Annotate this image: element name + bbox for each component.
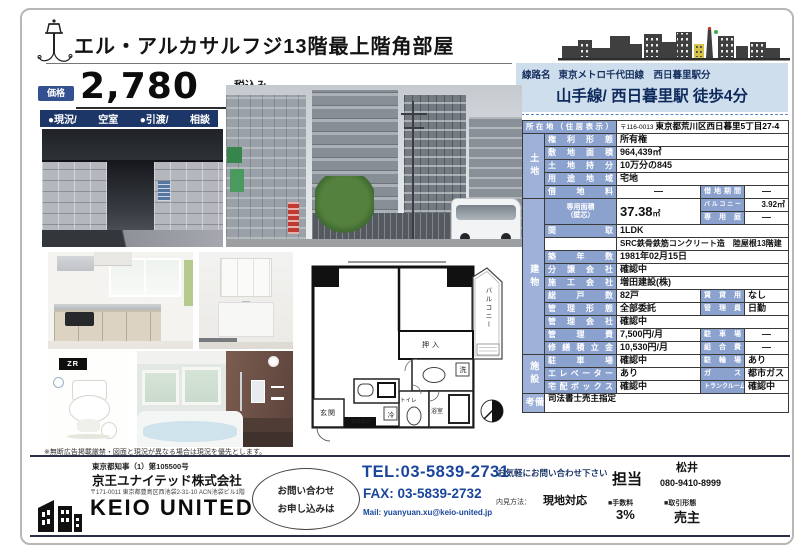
row-value: 1981年02月15日 [617, 251, 789, 264]
label-entrance: 玄関 [320, 408, 336, 418]
photo-entrance [42, 129, 223, 247]
area-label-sub: （壁芯） [548, 212, 613, 219]
floor-shadow [67, 434, 109, 440]
row-label: 管理費 [545, 329, 617, 342]
tree [315, 176, 374, 236]
range-hood [57, 256, 95, 272]
bath-window [182, 367, 221, 404]
price-underline [76, 107, 228, 109]
row-label: 土地持分 [545, 160, 617, 173]
row-label: 総戸数 [545, 290, 617, 303]
contact-person-phone: 080-9410-8999 [660, 478, 721, 488]
deal-type-value: 売主 [674, 507, 700, 526]
table-row: 築年数1981年02月15日 [523, 251, 789, 264]
row-value: 確認中 [617, 381, 701, 394]
row-label: 宅配ボックス [545, 381, 617, 394]
contact-person-label: 担当 [612, 468, 642, 489]
contact-notice: お気軽にお問い合わせ下さい [497, 467, 608, 479]
row-value2: あり [745, 355, 789, 368]
balcony-label: バルコニー [701, 199, 745, 212]
table-row: エレベーター あり ガス 都市ガス [523, 368, 789, 381]
entrance-opening [107, 160, 154, 231]
row-value: 10万分の845 [617, 160, 789, 173]
title-underline [46, 63, 512, 64]
row-value: SRC鉄骨鉄筋コンクリート造 陸屋根13階建 [617, 238, 789, 251]
row-label2: ガス [701, 368, 745, 381]
dashed-divider [516, 114, 788, 115]
bathtub [137, 411, 243, 447]
group-facility: 施設 [523, 355, 545, 394]
floor-plan-drawing [296, 251, 513, 450]
entrance-floor [42, 230, 223, 247]
photo-kitchen [48, 252, 193, 349]
row-label: 用途地域 [545, 173, 617, 186]
table-row: 間取1LDK [523, 225, 789, 238]
group-land: 土地 [523, 134, 545, 199]
upper-cabinet [94, 252, 132, 266]
bath-water [143, 421, 236, 441]
access-walk: 山手線/ 西日暮里駅 徒歩4分 [522, 84, 782, 106]
label-closet: 押入 [422, 340, 442, 350]
photo-building-exterior [226, 85, 522, 247]
photo-washbasin [199, 252, 293, 349]
address-value: 〒116-0013東京都荒川区西日暮里5丁目27-4 [617, 121, 789, 134]
row-value: 10,530円/月 [617, 342, 701, 355]
row-label: 敷地面積 [545, 147, 617, 160]
zip-code: 〒116-0013 [620, 124, 654, 131]
row-value: 964,439㎡ [617, 147, 789, 160]
row-label: 間取 [545, 225, 617, 238]
row-label: 分譲会社 [545, 264, 617, 277]
row-value: 増田建設(株) [617, 277, 789, 290]
access-line: 線路名東京メトロ千代田線 西日暮里駅分 [522, 67, 782, 81]
property-spec-table: 所在地（住居表示） 〒116-0013東京都荒川区西日暮里5丁目27-4 土地 … [522, 120, 789, 413]
toilet-base [77, 419, 100, 432]
row-label: エレベーター [545, 368, 617, 381]
label-fridge: 冷 [385, 409, 397, 419]
row-value2: なし [745, 290, 789, 303]
row-label: 施工会社 [545, 277, 617, 290]
green-sign [227, 147, 242, 163]
group-building: 建物 [523, 199, 545, 355]
vanity-unit [218, 302, 274, 337]
area-number: 37.38 [620, 204, 653, 219]
viewing-method-value: 現地対応 [543, 492, 587, 508]
row-value: 確認中 [617, 316, 789, 329]
company-logo-text: KEIO UNITED [90, 495, 254, 521]
row-value: 確認中 [617, 264, 789, 277]
entrance-awning [42, 129, 223, 162]
table-row: 土地持分10万分の845 [523, 160, 789, 173]
garden-value: ― [745, 212, 789, 225]
photo-toilet: ZR [48, 352, 129, 446]
table-row: 土地 権利形態 所有権 [523, 134, 789, 147]
table-row: 修繕積立金 10,530円/月 組合費 ― [523, 342, 789, 355]
bath-window [142, 370, 179, 405]
table-row: SRC鉄骨鉄筋コンクリート造 陸屋根13階建 [523, 238, 789, 251]
label-toilet: トイレ [400, 396, 417, 404]
address-text: 東京都荒川区西日暮里5丁目27-4 [656, 121, 780, 131]
mirror-cabinet [220, 258, 273, 297]
fee-value: 3% [616, 507, 635, 522]
status-bar: ●現況/ 空室 ●引渡/ 相談 [40, 110, 218, 127]
pole-crossarm [401, 113, 428, 115]
footer-divider-top [30, 455, 790, 457]
row-value2: ― [745, 186, 789, 199]
group-notes: 備考 [523, 394, 545, 413]
area-label: 専用面積（壁芯） [545, 199, 617, 225]
row-value: 82戸 [617, 290, 701, 303]
table-row: 分譲会社確認中 [523, 264, 789, 277]
table-row: 管理会社確認中 [523, 316, 789, 329]
status-handover-label: ●引渡/ [140, 111, 169, 126]
row-value2: ― [745, 342, 789, 355]
address-label: 所在地（住居表示） [523, 121, 617, 134]
price-amount: 2,780 [80, 66, 199, 107]
row-value: 1LDK [617, 225, 789, 238]
row-label-empty [545, 238, 617, 251]
fax-number: FAX: 03-5839-2732 [363, 486, 482, 501]
bath-mirror [251, 380, 265, 403]
access-box: 線路名東京メトロ千代田線 西日暮里駅分 山手線/ 西日暮里駅 徒歩4分 [516, 63, 788, 112]
table-row: 施工会社増田建設(株) [523, 277, 789, 290]
row-label2: 賃貸用 [701, 290, 745, 303]
row-value: あり [617, 368, 701, 381]
tel-number: TEL:03-5839-2731 [362, 463, 509, 482]
street [226, 239, 522, 247]
row-label2: 管理員 [701, 303, 745, 316]
table-row: 所在地（住居表示） 〒116-0013東京都荒川区西日暮里5丁目27-4 [523, 121, 789, 134]
utility-pole [412, 101, 414, 239]
bath-counter-front [243, 432, 293, 447]
notes-value: 司法書士売主指定 [545, 394, 789, 413]
row-value: 7,500円/月 [617, 329, 701, 342]
row-value2: 日勤 [745, 303, 789, 316]
green-accent-wall [184, 260, 193, 307]
row-value2: ― [745, 329, 789, 342]
table-row: 宅配ボックス 確認中 トランクルーム 確認中 [523, 381, 789, 394]
table-row: 建物 専用面積（壁芯） 37.38㎡ バルコニー 3.92㎡ [523, 199, 789, 212]
row-value: ― [617, 186, 701, 199]
photo-bathroom [137, 351, 293, 447]
table-row: 敷地面積964,439㎡ [523, 147, 789, 160]
city-skyline-graphic [556, 26, 792, 62]
table-row: 管理形態 全部委託 管理員 日勤 [523, 303, 789, 316]
street-lamp-icon [36, 18, 76, 66]
table-row: 管理費 7,500円/月 駐車場 ― [523, 329, 789, 342]
cta-line1: お問い合わせ [277, 483, 334, 497]
row-label: 借地料 [545, 186, 617, 199]
maker-logo [53, 377, 64, 388]
row-label: 築年数 [545, 251, 617, 264]
row-label2: 組合費 [701, 342, 745, 355]
pole-crossarm [404, 127, 425, 129]
row-value: 確認中 [617, 355, 701, 368]
area-unit: ㎡ [653, 209, 661, 218]
row-label: 管理形態 [545, 303, 617, 316]
access-line-value: 東京メトロ千代田線 西日暮里駅分 [559, 70, 711, 81]
footer-divider-bottom [30, 535, 790, 537]
label-balcony: バルコニー [482, 287, 492, 330]
garden-label: 専用庭 [701, 212, 745, 225]
bath-shelf [271, 397, 283, 400]
red-banner [288, 202, 298, 234]
row-value: 所有権 [617, 134, 789, 147]
row-value2: 都市ガス [745, 368, 789, 381]
cta-oval: お問い合わせ お申し込みは [252, 468, 360, 530]
price-badge: 価格 [38, 86, 74, 101]
row-label: 修繕積立金 [545, 342, 617, 355]
row-label: 駐車場 [545, 355, 617, 368]
viewing-method-label: 内見方法： [496, 497, 531, 507]
bath-counter [243, 418, 293, 431]
label-bath: 浴室 [431, 406, 443, 415]
label-washbasin: 洗 [457, 365, 469, 375]
table-row: 借地料 ― 借地期間 ― [523, 186, 789, 199]
white-van [451, 198, 521, 241]
bath-shelf [271, 386, 283, 389]
table-row: 用途地域宅地 [523, 173, 789, 186]
company-logo-icon [34, 494, 86, 534]
row-value2: 確認中 [745, 381, 789, 394]
row-label2: トランクルーム [701, 381, 745, 394]
entrance-sign [158, 181, 171, 201]
row-label2: 借地期間 [701, 186, 745, 199]
oven [65, 312, 94, 326]
toilet-model-tag: ZR [59, 358, 87, 370]
van-windows [456, 205, 516, 220]
access-line-label: 線路名 [522, 70, 551, 81]
status-handover-value: 相談 [190, 111, 210, 126]
washroom-floor [199, 342, 293, 349]
status-current-label: ●現況/ [48, 111, 77, 126]
cta-line2: お申し込みは [277, 501, 334, 515]
row-label: 管理会社 [545, 316, 617, 329]
floor-plan: バルコニー 押入 洗 トイレ 浴室 玄関 玄関収納 冷 [296, 251, 513, 450]
balcony-value: 3.92㎡ [745, 199, 789, 212]
row-value: 全部委託 [617, 303, 701, 316]
table-row: 総戸数 82戸 賃貸用 なし [523, 290, 789, 303]
green-sign [230, 169, 243, 192]
row-value: 宅地 [617, 173, 789, 186]
label-entrance-storage: 玄関収納 [346, 418, 375, 425]
ceiling-light [268, 356, 279, 367]
mail-address: Mail: yuanyuan.xu@keio-united.jp [363, 508, 492, 517]
page-title: エル・アルカサルフジ13階最上階角部屋 [74, 30, 454, 59]
shower-bar [240, 372, 242, 410]
window-mullion [144, 258, 146, 297]
area-label-main: 専用面積 [548, 204, 613, 211]
table-row: 施設 駐車場 確認中 駐輪場 あり [523, 355, 789, 368]
kitchen-floor [48, 341, 193, 349]
status-current-value: 空室 [98, 111, 118, 126]
row-label: 権利形態 [545, 134, 617, 147]
area-value: 37.38㎡ [617, 199, 701, 225]
contact-person-name: 松井 [676, 459, 698, 475]
table-row: 備考 司法書士売主指定 [523, 394, 789, 413]
row-label2: 駐車場 [701, 329, 745, 342]
row-label2: 駐輪場 [701, 355, 745, 368]
